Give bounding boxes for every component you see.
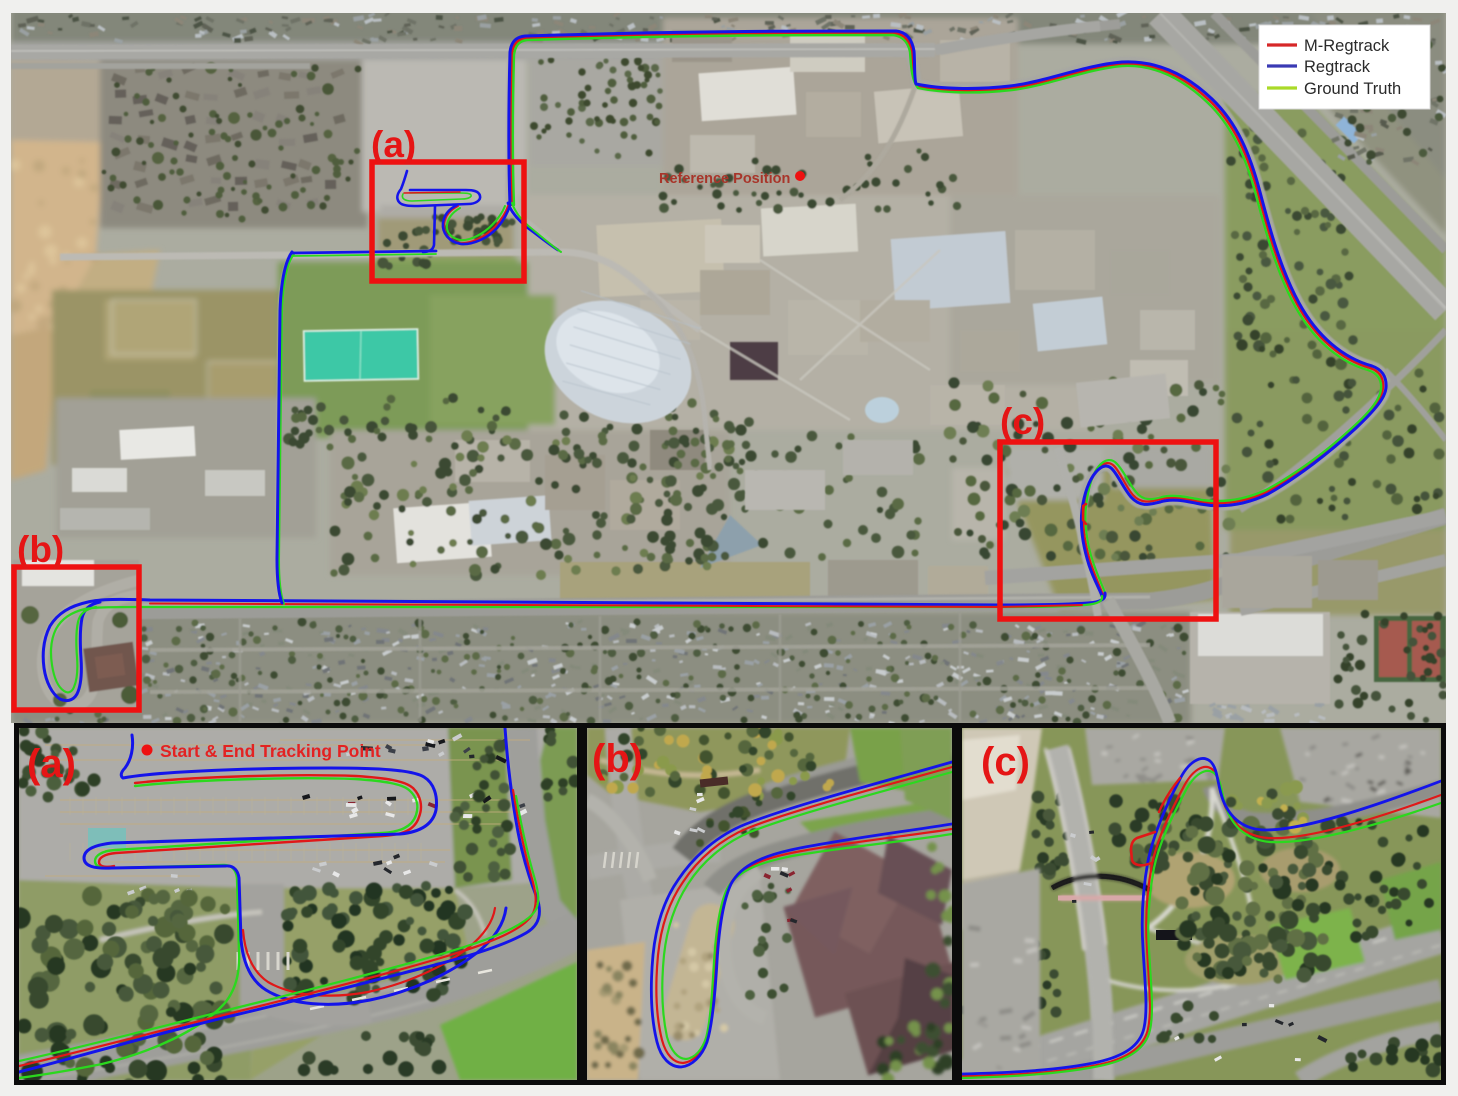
svg-text:Regtrack: Regtrack — [1304, 58, 1371, 76]
svg-text:(b): (b) — [592, 737, 643, 781]
svg-text:(c): (c) — [981, 740, 1030, 784]
svg-text:Ground Truth: Ground Truth — [1304, 80, 1401, 98]
svg-text:Reference Position: Reference Position — [659, 171, 790, 187]
svg-text:Start & End Tracking Point: Start & End Tracking Point — [160, 741, 381, 761]
svg-text:(b): (b) — [17, 529, 64, 570]
svg-text:(a): (a) — [371, 124, 416, 165]
svg-text:M-Regtrack: M-Regtrack — [1304, 37, 1390, 55]
svg-text:(c): (c) — [1000, 401, 1045, 442]
svg-text:(a): (a) — [27, 742, 76, 786]
